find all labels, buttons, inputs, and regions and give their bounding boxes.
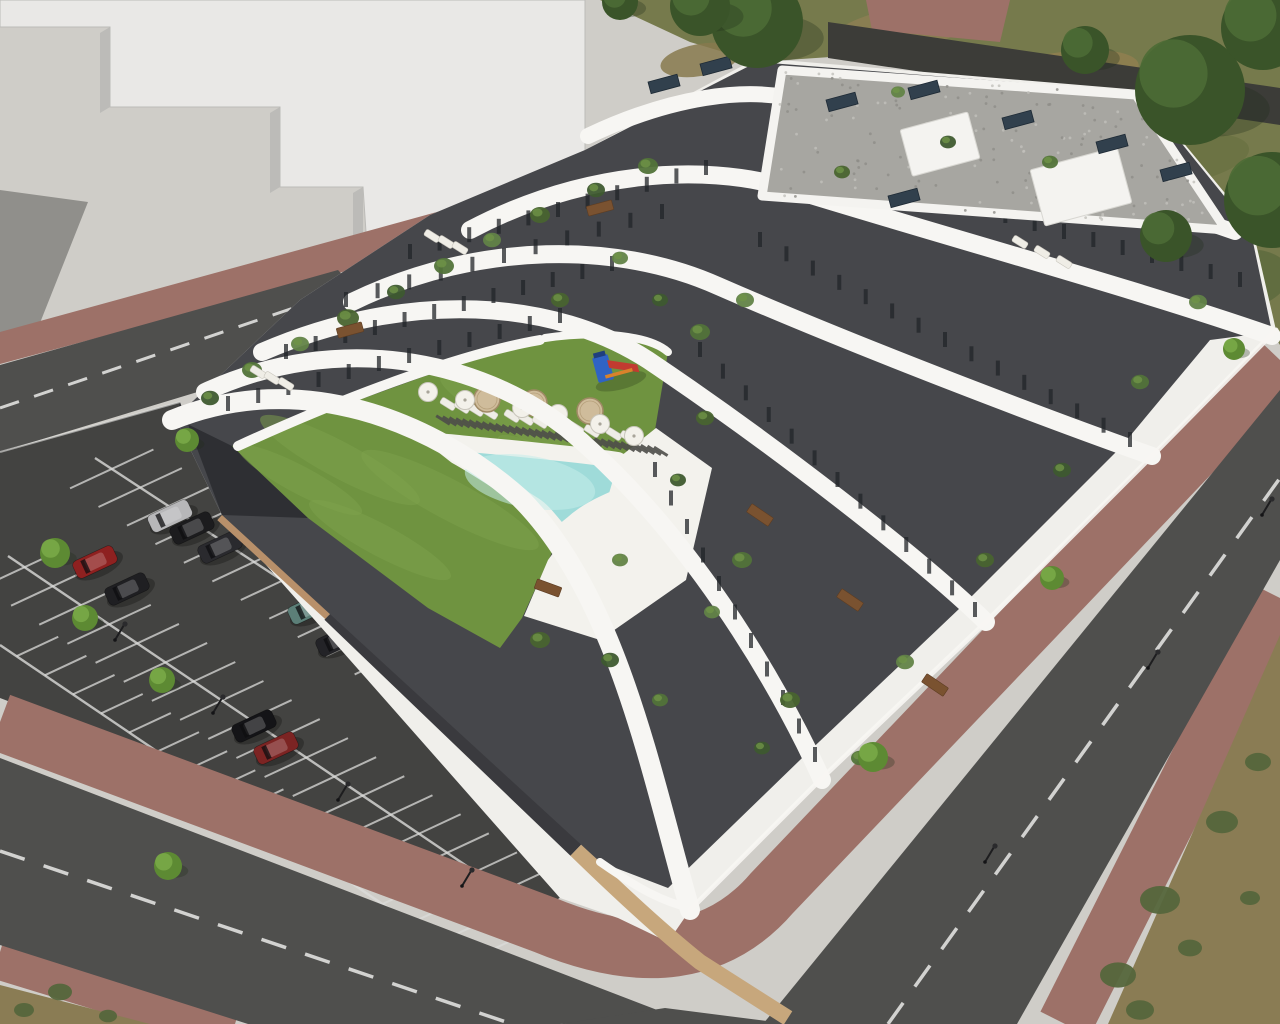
gravel-dot: [839, 77, 842, 80]
terrace-plant: [704, 606, 720, 619]
gravel-dot: [1144, 202, 1147, 205]
terrace-plant: [1189, 295, 1207, 309]
gravel-dot: [1168, 159, 1171, 162]
terrace-plant: [652, 294, 668, 307]
plant-highlight: [698, 412, 707, 419]
gravel-dot: [790, 77, 793, 80]
gravel-dot: [1175, 159, 1178, 162]
terrace-plant: [732, 552, 752, 568]
gravel-dot: [857, 84, 860, 87]
plant-highlight: [533, 209, 543, 217]
window: [432, 304, 436, 319]
gravel-dot: [1083, 133, 1086, 136]
plant-highlight: [654, 295, 662, 301]
gravel-dot: [1057, 151, 1060, 154]
window: [565, 230, 569, 245]
window: [904, 537, 908, 552]
gravel-dot: [1061, 136, 1064, 139]
parasol-pole: [632, 434, 635, 437]
parasol: [456, 391, 475, 410]
gravel-dot: [1069, 137, 1072, 140]
terrace-plant: [291, 337, 309, 351]
gravel-dot: [1088, 130, 1091, 133]
window: [660, 204, 664, 219]
window: [284, 344, 288, 359]
gravel-dot: [1081, 137, 1084, 140]
tree-highlight: [176, 429, 191, 444]
plant-highlight: [603, 654, 612, 661]
parasol-pole: [463, 398, 466, 401]
window: [890, 303, 894, 318]
window: [498, 324, 502, 339]
window: [685, 519, 689, 534]
plant-highlight: [756, 743, 764, 749]
gravel-dot: [993, 211, 996, 214]
parasol-pole: [426, 390, 429, 393]
terrace-plant: [551, 293, 569, 307]
lamp-head: [1269, 496, 1274, 501]
lamp-head: [1155, 649, 1160, 654]
window: [317, 372, 321, 387]
gravel-dot: [998, 84, 1001, 87]
plant-highlight: [340, 311, 351, 320]
window: [521, 280, 525, 295]
gravel-dot: [1030, 202, 1033, 205]
window: [749, 633, 753, 648]
parasol: [419, 383, 438, 402]
terrace-plant: [530, 207, 550, 223]
window: [491, 288, 495, 303]
lamp-base: [211, 711, 215, 715]
gravel-dot: [946, 85, 949, 88]
gravel-dot: [1165, 202, 1168, 205]
gravel-dot: [875, 187, 878, 190]
window: [1238, 272, 1242, 287]
lamp-head: [469, 867, 474, 872]
window: [407, 274, 411, 289]
terrace-plant: [601, 653, 619, 667]
gravel-dot: [1192, 201, 1195, 204]
window: [502, 248, 506, 263]
gravel-dot: [873, 141, 876, 144]
window: [698, 342, 702, 357]
lamp-base: [1146, 666, 1150, 670]
window: [580, 264, 584, 279]
shrub: [1240, 891, 1260, 905]
gravel-dot: [856, 159, 859, 162]
window: [347, 364, 351, 379]
gravel-dot: [975, 129, 978, 132]
plant-highlight: [641, 160, 651, 168]
gravel-dot: [1156, 176, 1159, 179]
window: [403, 312, 407, 327]
plant-highlight: [614, 555, 622, 561]
window: [996, 361, 1000, 376]
gravel-dot: [831, 73, 834, 76]
terrace-plant: [201, 391, 219, 405]
gravel-dot: [1012, 191, 1015, 194]
gravel-dot: [1104, 121, 1107, 124]
tree-highlight: [73, 606, 89, 622]
window: [797, 719, 801, 734]
gravel-dot: [1186, 179, 1189, 182]
plant-highlight: [738, 294, 747, 301]
gravel-dot: [818, 72, 821, 75]
lamp-base: [1260, 513, 1264, 517]
gravel-dot: [1101, 214, 1104, 217]
gravel-dot: [869, 132, 872, 135]
window: [881, 515, 885, 530]
gravel-dot: [795, 133, 798, 136]
window: [744, 385, 748, 400]
gravel-dot: [974, 114, 977, 117]
gravel-dot: [1181, 203, 1184, 206]
context-building-step-face: [270, 107, 280, 193]
gravel-dot: [831, 77, 834, 80]
shrub: [48, 984, 72, 1001]
gravel-dot: [1002, 129, 1005, 132]
plant-highlight: [203, 392, 212, 399]
gravel-dot: [895, 99, 898, 102]
plant-highlight: [533, 634, 543, 642]
window: [470, 257, 474, 272]
gravel-dot: [1114, 125, 1117, 128]
window: [462, 296, 466, 311]
terrace-plant: [940, 136, 956, 149]
tree-highlight: [150, 668, 166, 684]
plant-highlight: [706, 607, 714, 613]
gravel-dot: [992, 148, 995, 151]
gravel-dot: [854, 186, 857, 189]
gravel-dot: [1131, 176, 1134, 179]
gravel-dot: [864, 162, 867, 165]
gravel-dot: [914, 185, 917, 188]
gravel-dot: [895, 104, 898, 107]
window: [790, 429, 794, 444]
gravel-dot: [1142, 143, 1145, 146]
gravel-dot: [917, 180, 920, 183]
plant-highlight: [978, 554, 987, 561]
gravel-dot: [944, 95, 947, 98]
window: [497, 219, 501, 234]
window: [973, 602, 977, 617]
window: [344, 292, 348, 307]
gravel-dot: [1084, 216, 1087, 219]
window: [811, 261, 815, 276]
gravel-dot: [1025, 186, 1028, 189]
gravel-dot: [979, 159, 982, 162]
plant-highlight: [1133, 376, 1142, 383]
gravel-dot: [1166, 198, 1169, 201]
window: [556, 202, 560, 217]
gravel-dot: [969, 92, 972, 95]
lamp-base: [460, 884, 464, 888]
gravel-dot: [1034, 123, 1037, 126]
terrace-plant: [754, 742, 770, 755]
gravel-dot: [852, 117, 855, 120]
terrace-plant: [638, 158, 658, 174]
window: [376, 283, 380, 298]
gravel-dot: [993, 105, 996, 108]
tree-highlight: [1139, 39, 1207, 107]
gravel-dot: [899, 156, 902, 159]
context-building-step-face: [100, 27, 110, 113]
gravel-dot: [1132, 213, 1135, 216]
gravel-dot: [982, 127, 985, 130]
gravel-dot: [784, 71, 787, 74]
window: [1075, 403, 1079, 418]
terrace-plant: [891, 86, 905, 97]
window: [1091, 232, 1095, 247]
window: [528, 316, 532, 331]
gravel-dot: [1010, 139, 1013, 142]
render-stage: [0, 0, 1280, 1024]
gravel-dot: [1015, 129, 1018, 132]
plant-highlight: [693, 326, 703, 334]
window: [704, 160, 708, 175]
gravel-dot: [1120, 118, 1123, 121]
shrub: [1126, 1000, 1154, 1020]
plant-highlight: [614, 253, 622, 259]
gravel-dot: [789, 187, 792, 190]
window: [1049, 389, 1053, 404]
gravel-dot: [1035, 103, 1038, 106]
terrace-plant: [652, 694, 668, 707]
plant-highlight: [672, 475, 680, 481]
terrace-plant: [670, 474, 686, 487]
window: [917, 318, 921, 333]
window: [767, 407, 771, 422]
shrub: [1100, 962, 1136, 987]
window: [836, 472, 840, 487]
window: [784, 246, 788, 261]
gravel-dot: [1140, 164, 1143, 167]
plant-highlight: [942, 137, 950, 143]
window: [927, 559, 931, 574]
gravel-dot: [857, 166, 860, 169]
gravel-dot: [1201, 211, 1204, 214]
plant-highlight: [293, 338, 302, 345]
terrace-plant: [387, 285, 405, 299]
gravel-dot: [1091, 106, 1094, 109]
shrub: [1245, 753, 1271, 771]
window: [653, 462, 657, 477]
tree-highlight: [1063, 28, 1093, 58]
terrace-plant: [896, 655, 914, 669]
gravel-dot: [783, 194, 786, 197]
gravel-dot: [1093, 119, 1096, 122]
gravel-dot: [1189, 200, 1192, 203]
terrace-plant: [976, 553, 994, 567]
plant-highlight: [836, 167, 844, 173]
tree-highlight: [1224, 339, 1238, 353]
terrace-plant: [834, 166, 850, 179]
window: [467, 332, 471, 347]
gravel-dot: [794, 195, 797, 198]
gravel-dot: [973, 164, 976, 167]
shrub: [1178, 940, 1202, 957]
window: [701, 548, 705, 563]
plant-highlight: [1044, 157, 1052, 163]
terrace-plant: [434, 258, 454, 274]
gravel-dot: [887, 174, 890, 177]
gravel-dot: [1080, 143, 1083, 146]
gravel-dot: [934, 184, 937, 187]
terrace-plant: [530, 632, 550, 648]
gravel-dot: [830, 114, 833, 117]
lamp-base: [983, 860, 987, 864]
window: [943, 332, 947, 347]
window: [674, 168, 678, 183]
tree-highlight: [859, 743, 878, 762]
plant-highlight: [589, 184, 598, 191]
window: [314, 336, 318, 351]
window: [408, 244, 412, 259]
window: [467, 227, 471, 242]
window: [256, 388, 260, 403]
gravel-dot: [795, 108, 798, 111]
window: [669, 491, 673, 506]
window: [407, 348, 411, 363]
window: [858, 494, 862, 509]
gravel-dot: [1099, 135, 1102, 138]
plant-highlight: [389, 286, 398, 293]
tree-highlight: [1142, 212, 1174, 244]
terrace-plant: [612, 554, 628, 567]
window: [1128, 432, 1132, 447]
shrub: [99, 1010, 117, 1023]
lamp-head: [122, 621, 127, 626]
lamp-head: [345, 781, 350, 786]
gravel-dot: [1187, 218, 1190, 221]
gravel-dot: [884, 101, 887, 104]
plant-highlight: [485, 234, 494, 241]
window: [733, 605, 737, 620]
gravel-dot: [779, 103, 782, 106]
gravel-dot: [979, 201, 982, 204]
terrace-plant: [612, 252, 628, 265]
gravel-dot: [1192, 181, 1195, 184]
gravel-dot: [1023, 150, 1026, 153]
lamp-base: [113, 638, 117, 642]
gravel-dot: [841, 83, 844, 86]
tree-highlight: [1041, 567, 1056, 582]
window: [758, 232, 762, 247]
tree-highlight: [155, 853, 172, 870]
tree-highlight: [41, 539, 60, 558]
gravel-dot: [1049, 103, 1052, 106]
gravel-dot: [1084, 112, 1087, 115]
gravel-dot: [1100, 218, 1103, 221]
window: [1062, 224, 1066, 239]
plant-highlight: [783, 694, 793, 702]
gravel-dot: [1145, 136, 1148, 139]
window: [226, 396, 230, 411]
gravel-dot: [1070, 152, 1073, 155]
gravel-dot: [1116, 110, 1119, 113]
window: [597, 222, 601, 237]
terrace-plant: [1131, 375, 1149, 389]
window: [437, 340, 441, 355]
gravel-dot: [816, 151, 819, 154]
gravel-dot: [814, 147, 817, 150]
plant-highlight: [735, 554, 745, 562]
window: [1022, 375, 1026, 390]
window: [969, 346, 973, 361]
gravel-dot: [803, 171, 806, 174]
gravel-dot: [957, 96, 960, 99]
terrace-plant: [780, 692, 800, 708]
window: [377, 356, 381, 371]
plant-highlight: [1191, 296, 1200, 303]
aerial-render: [0, 0, 1280, 1024]
gravel-dot: [1027, 91, 1030, 94]
plant-highlight: [553, 294, 562, 301]
shrub: [14, 1003, 34, 1017]
gravel-dot: [1024, 179, 1027, 182]
gravel-dot: [985, 102, 988, 105]
terrace-plant: [690, 324, 710, 340]
plant-highlight: [898, 656, 907, 663]
gravel-dot: [877, 102, 880, 105]
gravel-dot: [820, 181, 823, 184]
window: [558, 308, 562, 323]
window: [1209, 264, 1213, 279]
gravel-dot: [898, 107, 901, 110]
terrace-plant: [587, 183, 605, 197]
shrub: [1206, 811, 1238, 833]
gravel-dot: [787, 103, 790, 106]
gravel-dot: [780, 168, 783, 171]
gravel-dot: [1020, 145, 1023, 148]
gravel-dot: [949, 112, 952, 115]
plant-highlight: [1055, 464, 1064, 471]
plant-highlight: [893, 87, 900, 93]
window: [765, 662, 769, 677]
window: [864, 289, 868, 304]
window: [615, 185, 619, 200]
plant-highlight: [437, 260, 447, 268]
terrace-plant: [1053, 463, 1071, 477]
gravel-dot: [1082, 104, 1085, 107]
window: [721, 364, 725, 379]
window: [645, 177, 649, 192]
window: [1121, 240, 1125, 255]
gravel-dot: [1056, 88, 1059, 91]
window: [813, 747, 817, 762]
terrace-plant: [696, 411, 714, 425]
window: [551, 272, 555, 287]
gravel-dot: [854, 178, 857, 181]
gravel-dot: [985, 95, 988, 98]
lamp-head: [992, 843, 997, 848]
gravel-dot: [992, 158, 995, 161]
window: [813, 450, 817, 465]
window: [1102, 418, 1106, 433]
gravel-dot: [796, 82, 799, 85]
gravel-dot: [825, 119, 828, 122]
terrace-plant: [483, 233, 501, 247]
gravel-dot: [996, 181, 999, 184]
window: [373, 320, 377, 335]
window: [534, 239, 538, 254]
lamp-head: [220, 694, 225, 699]
window: [526, 210, 530, 225]
gravel-dot: [1001, 92, 1004, 95]
plant-highlight: [654, 695, 662, 701]
parasol: [591, 415, 610, 434]
parasol-pole: [598, 422, 601, 425]
